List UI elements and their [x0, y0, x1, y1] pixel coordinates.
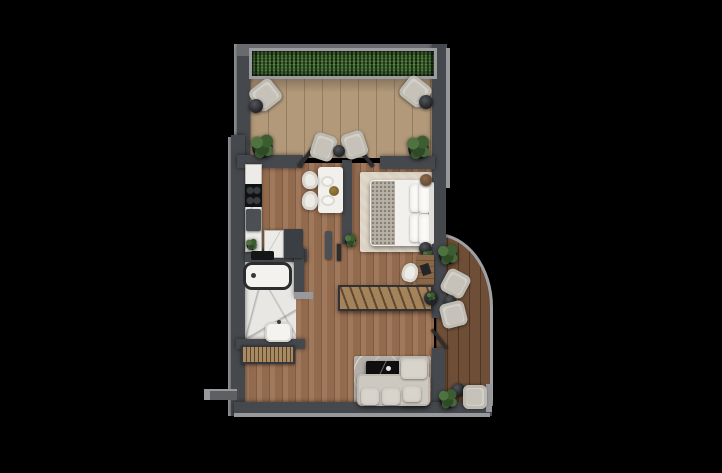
bedroom-desk	[417, 255, 434, 285]
right-outer-light	[446, 48, 450, 188]
bathroom-towel-shelf	[251, 251, 274, 260]
balcony-plant-bottom	[437, 388, 459, 410]
cooktop	[245, 184, 262, 207]
entry-stub-inner	[210, 391, 237, 400]
terrace-side-table-right	[419, 95, 433, 109]
hedge	[252, 51, 434, 76]
dining-bedroom-wall	[342, 160, 352, 244]
bathroom-sink	[265, 322, 292, 342]
kitchen-sink-unit	[246, 209, 261, 231]
bed-throw	[371, 181, 395, 245]
kitchen-counter-plant	[245, 238, 258, 251]
terrace-plant-right	[405, 134, 432, 161]
dining-plate-2	[321, 195, 335, 206]
sofa-cushion-3	[403, 386, 421, 402]
hallway-mirror	[325, 231, 332, 259]
terrace-plant-left	[249, 133, 276, 160]
bedroom-door-leaf	[337, 244, 341, 261]
terrace-coffee-table	[333, 145, 345, 157]
apartment-floor-plan	[0, 0, 722, 473]
bathroom-door-stub	[294, 292, 313, 299]
kitchen-fridge-unit	[284, 229, 303, 258]
bathtub	[243, 262, 292, 290]
bedroom-planter	[420, 174, 432, 186]
balcony-plant-top	[436, 243, 460, 266]
sofa-cushion-2	[382, 388, 400, 405]
terrace-side-table-left	[249, 99, 263, 113]
balcony-armchair-3	[463, 385, 487, 409]
dining-centerpiece	[329, 186, 339, 196]
sofa-chaise-pillow	[401, 359, 427, 379]
console-planter-leaves	[426, 292, 436, 301]
hallway-console	[338, 285, 433, 311]
bed-headboard	[429, 182, 434, 244]
sofa-cushion-1	[361, 388, 379, 405]
bottom-outer-light	[234, 413, 490, 417]
hallway-plant	[344, 233, 357, 248]
hallway-bench	[241, 345, 295, 364]
